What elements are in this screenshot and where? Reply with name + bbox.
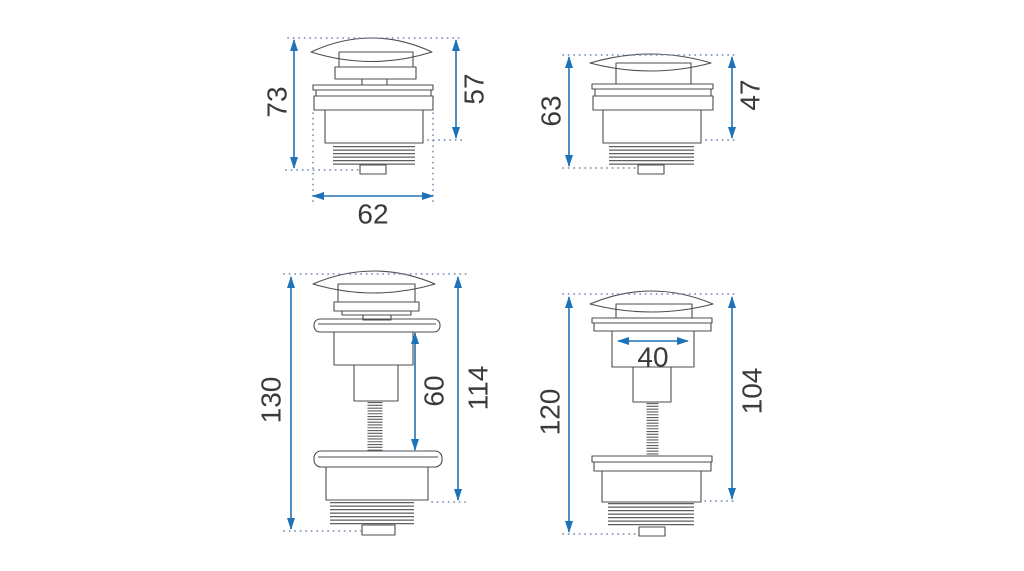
cap-body xyxy=(335,52,416,85)
upper-flange xyxy=(314,319,440,332)
dim-label-overall-height: 120 xyxy=(535,389,566,436)
drain-plug-dimension-drawing: 73 57 62 63 47 xyxy=(0,0,1024,571)
dim-label-overall-height: 73 xyxy=(262,86,293,117)
cap-body xyxy=(616,63,691,84)
body xyxy=(325,110,423,143)
lower-flange xyxy=(592,456,712,471)
dim-label-upper-height: 57 xyxy=(459,73,490,104)
valve-outline xyxy=(311,38,433,174)
view-top-left: 73 57 62 xyxy=(262,38,490,230)
bottom-nub xyxy=(639,527,665,536)
body xyxy=(603,110,701,143)
view-bottom-right: 120 40 104 xyxy=(535,291,768,536)
view-top-right: 63 47 xyxy=(536,54,766,174)
dim-label-width: 62 xyxy=(357,199,388,230)
valve-outline xyxy=(590,291,713,536)
dim-label-overall-height: 63 xyxy=(536,95,567,126)
flange xyxy=(592,84,713,110)
upper-flange xyxy=(592,318,712,331)
lower-body xyxy=(326,467,428,500)
dim-label-body-height: 104 xyxy=(737,368,768,415)
view-bottom-left: 130 60 114 xyxy=(256,271,494,535)
bottom-nub xyxy=(638,165,664,174)
flange xyxy=(313,85,433,110)
cap-dome xyxy=(311,38,432,62)
dim-label-overall-height: 130 xyxy=(256,377,287,424)
dimensions: 63 47 xyxy=(536,55,766,168)
stem-block xyxy=(354,365,398,401)
upper-body xyxy=(334,332,413,365)
valve-outline xyxy=(590,54,713,174)
dim-label-body-height: 114 xyxy=(463,366,494,411)
lower-flange xyxy=(314,451,442,467)
bottom-nub xyxy=(362,525,395,535)
bottom-nub xyxy=(360,165,386,174)
dim-label-stem-height: 60 xyxy=(419,375,450,406)
technical-drawing-sheet: 73 57 62 63 47 xyxy=(0,0,1024,571)
lower-body xyxy=(602,471,701,502)
dim-label-upper-height: 47 xyxy=(735,79,766,110)
dim-label-cap-width: 40 xyxy=(637,342,668,373)
cap-body xyxy=(334,284,419,320)
dimensions: 120 40 104 xyxy=(535,294,768,534)
